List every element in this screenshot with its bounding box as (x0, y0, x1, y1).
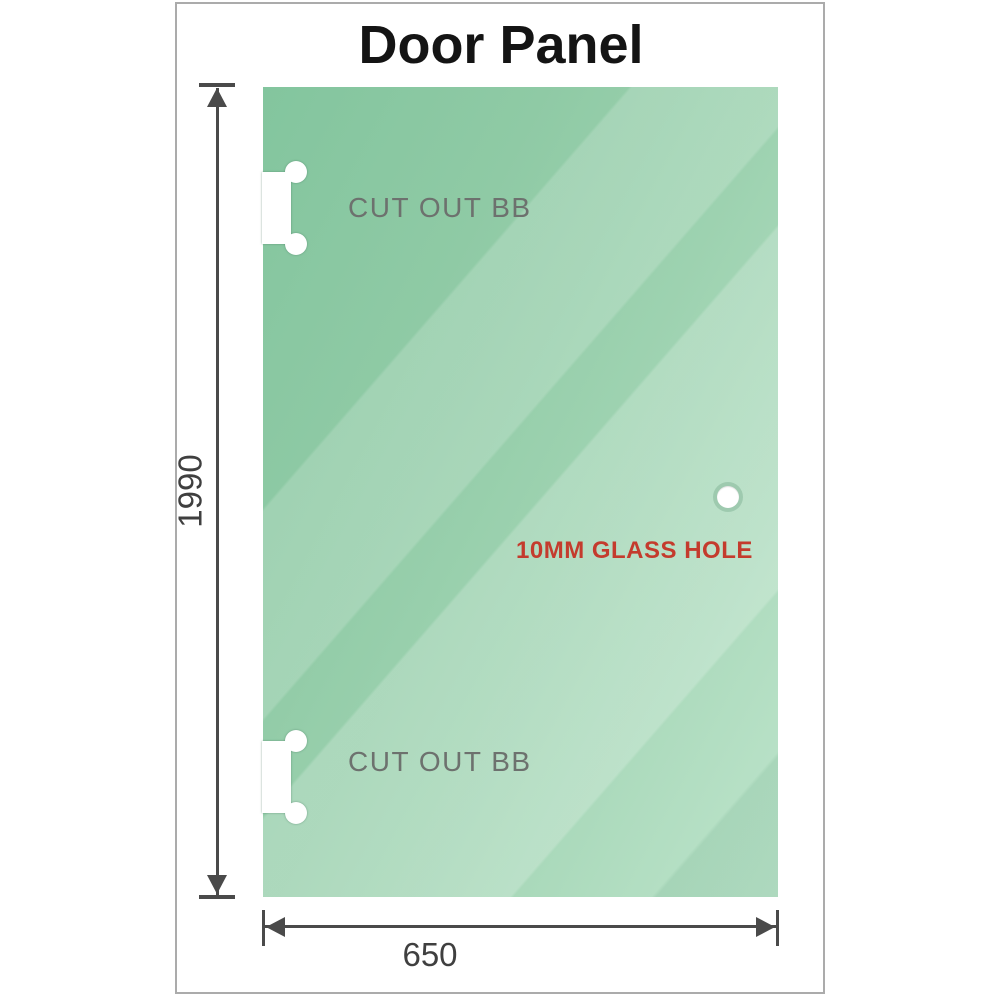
hinge-cutout-top (262, 160, 310, 256)
glass-hole-label: 10MM GLASS HOLE (516, 538, 753, 564)
cutout-shape-icon (262, 729, 310, 825)
page-title: Door Panel (175, 14, 827, 76)
height-dim-value: 1990 (174, 454, 207, 527)
width-dim-line (264, 925, 777, 928)
door-panel-diagram: Door Panel CUT OUT BB CUT OUT BB 10MM GL… (0, 0, 1000, 1000)
cutout-label-bottom: CUT OUT BB (348, 747, 532, 777)
cutout-label-top: CUT OUT BB (348, 193, 532, 223)
width-dim-value: 650 (380, 938, 480, 971)
cutout-shape-icon (262, 160, 310, 256)
height-dim-bottom-cap (199, 895, 235, 899)
width-dim-arrow-right-icon (756, 917, 775, 937)
width-dim-left-tick (262, 910, 265, 946)
width-dim-right-tick (776, 910, 779, 946)
height-dim-line (216, 88, 219, 896)
height-dim-top-cap (199, 83, 235, 87)
height-dim-arrow-down-icon (207, 875, 227, 894)
glass-hole-icon (717, 486, 739, 508)
hinge-cutout-bottom (262, 729, 310, 825)
